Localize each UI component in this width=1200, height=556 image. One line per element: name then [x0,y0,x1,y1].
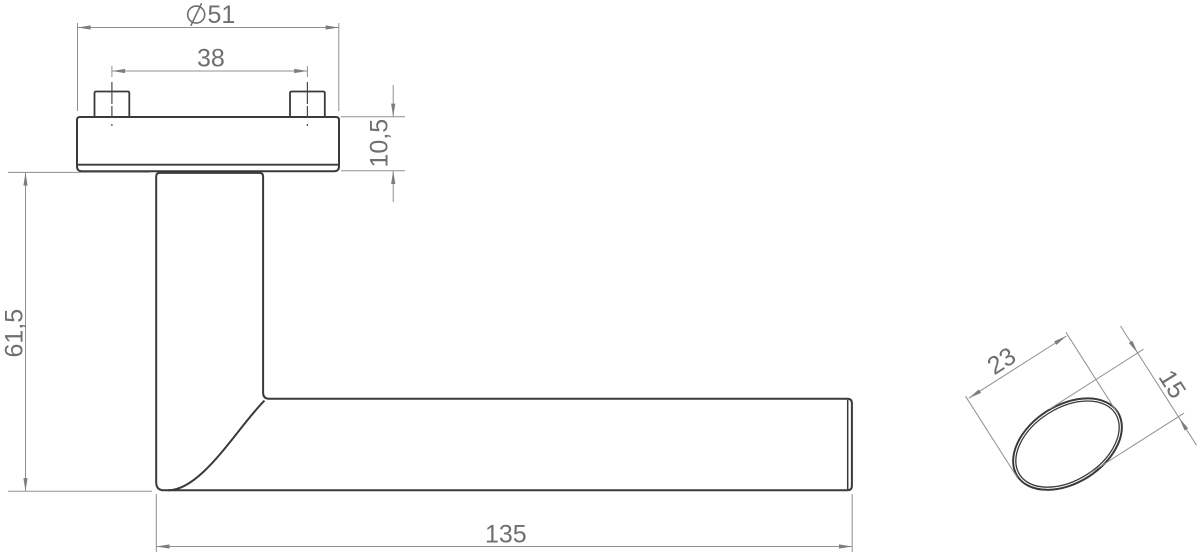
svg-text:10,5: 10,5 [366,119,394,168]
svg-text:61,5: 61,5 [0,309,28,358]
svg-text:38: 38 [197,45,225,73]
svg-text:135: 135 [485,521,527,549]
svg-text:51: 51 [208,1,236,29]
